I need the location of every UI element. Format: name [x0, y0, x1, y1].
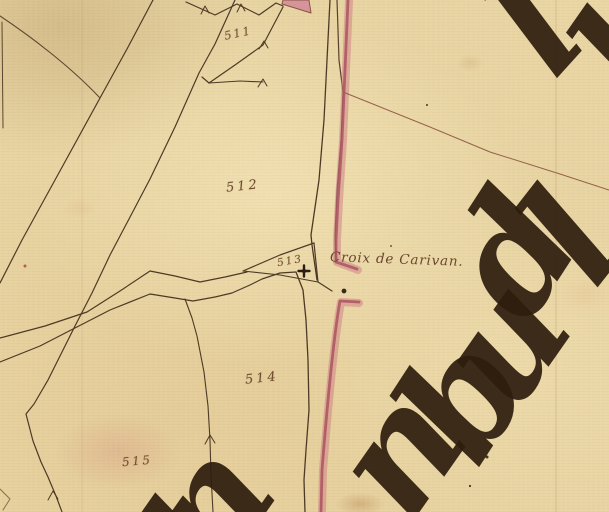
corner-zigzag [0, 489, 10, 510]
boundary-line-edge [2, 22, 3, 128]
map-linework [0, 0, 609, 512]
track-south-edge [0, 272, 296, 362]
zigzag-boundary [186, 2, 283, 15]
parcel-label-515: 515 [121, 453, 153, 470]
ink-blot [342, 289, 347, 294]
boundary-curve [0, 16, 100, 98]
boundary-red-line [343, 92, 609, 190]
cross-marker-icon [299, 266, 310, 277]
boundary-line [0, 0, 153, 283]
boundary-line-long [26, 0, 235, 512]
boundary-line [209, 81, 263, 83]
parcel-boundary-514-515 [185, 299, 213, 512]
boundary-line [209, 7, 283, 83]
road-west-edge [311, 0, 330, 280]
ink-specks [24, 104, 489, 487]
cadastral-map-canvas: 511 512 513 514 515 Croix de Carivan. u … [0, 0, 609, 512]
road-west-edge-south [296, 272, 309, 512]
boundary-line [202, 77, 209, 83]
building-footprint-pink [282, 0, 311, 13]
